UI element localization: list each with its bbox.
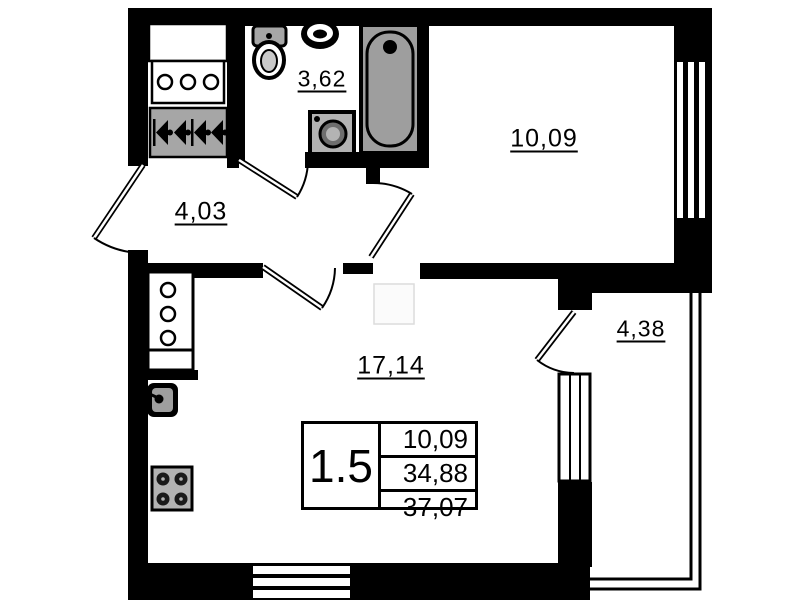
bedroom-door	[371, 183, 412, 257]
hallway-area-label: 4,03	[175, 198, 228, 227]
balcony-area-label: 4,38	[617, 316, 666, 343]
kitchen-sink-icon	[147, 383, 178, 417]
wall-bedroom-bottom-right	[590, 263, 712, 293]
wall-bathroom-bottom-left	[227, 152, 239, 168]
living-area-cell: 10,09	[381, 424, 475, 458]
balcony-door	[537, 312, 574, 373]
living-room-area-label: 17,14	[357, 352, 425, 381]
wall-balcony-left-lower	[558, 482, 592, 567]
wall-left-lower	[128, 250, 148, 580]
bathroom-area-label: 3,62	[298, 66, 347, 93]
wall-left-upper	[128, 26, 148, 166]
wall-bottom	[128, 563, 590, 600]
toilet-icon	[253, 26, 286, 78]
living-room-window	[253, 566, 350, 598]
bathtub-icon	[361, 25, 419, 153]
wardrobe-shelf	[149, 24, 227, 61]
stove-icon	[152, 467, 192, 510]
wall-bedroom-bottom	[420, 263, 558, 279]
rooms-count-cell: 1.5	[304, 424, 381, 507]
bedroom-window	[677, 62, 705, 218]
washing-machine-icon	[310, 112, 354, 154]
bedroom-area-label: 10,09	[510, 125, 578, 154]
living-room-door	[263, 267, 335, 308]
wall-balcony-pillar	[558, 263, 592, 310]
apartment-info-table: 1.5 10,09 34,88 37,07	[301, 421, 478, 510]
wall-closet-right	[227, 26, 245, 162]
entrance-door	[94, 165, 143, 253]
wall-hall-living-mid	[343, 263, 373, 274]
wardrobe	[149, 24, 228, 157]
total-area-cell: 37,07	[381, 492, 475, 523]
wardrobe-hangers-icon	[150, 108, 228, 157]
wall-stub-bedroom-door	[366, 168, 380, 184]
apartment-area-cell: 34,88	[381, 458, 475, 492]
floor-plan: 3,62 10,09 4,03 17,14 4,38 1.5 10,09 34,…	[0, 0, 799, 600]
bathroom-door	[239, 160, 308, 197]
kitchen-counter	[148, 272, 198, 380]
balcony-window	[559, 374, 590, 481]
faint-fixture-outline	[374, 284, 414, 324]
